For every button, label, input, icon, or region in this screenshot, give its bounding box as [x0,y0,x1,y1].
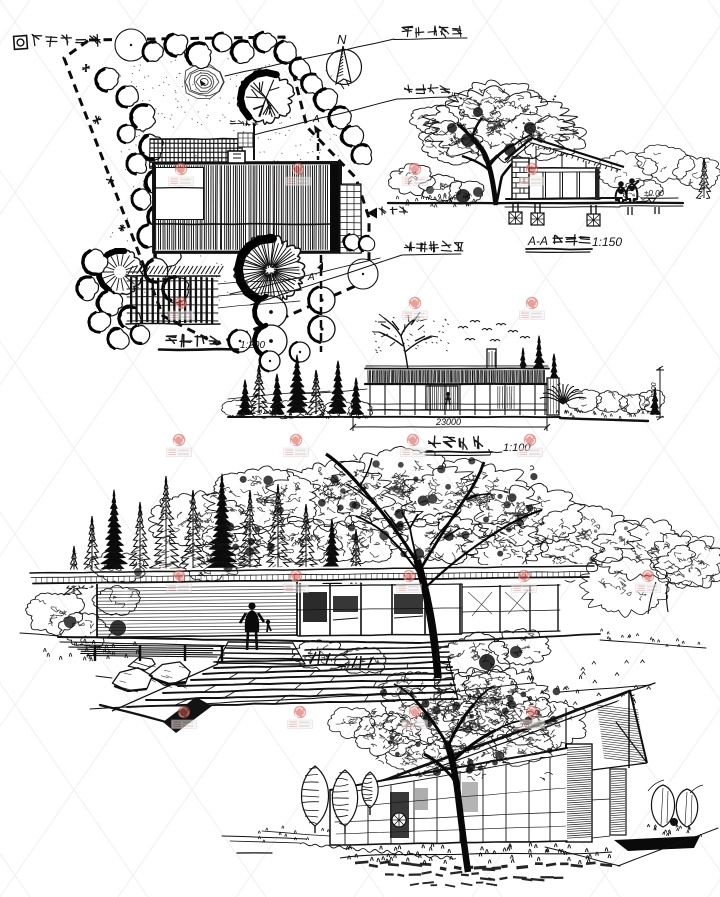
svg-text:N: N [337,32,347,47]
svg-text:1:200: 1:200 [240,340,265,351]
svg-text:±0.00: ±0.00 [644,189,665,198]
svg-text:23000: 23000 [435,417,461,427]
svg-text:1:150: 1:150 [592,235,622,249]
svg-text:A-A: A-A [527,234,548,248]
svg-text:3500: 3500 [651,382,658,398]
